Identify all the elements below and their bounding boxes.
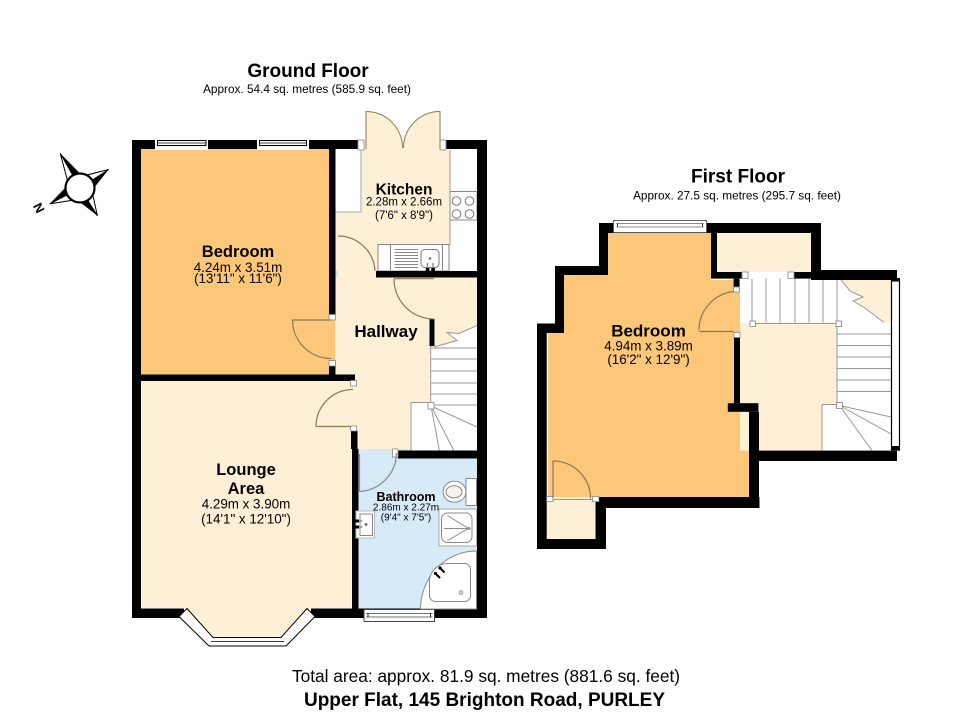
- svg-text:Hallway: Hallway: [354, 322, 418, 341]
- svg-text:Ground Floor: Ground Floor: [247, 61, 369, 82]
- svg-text:Approx. 54.4 sq. metres (585.9: Approx. 54.4 sq. metres (585.9 sq. feet): [203, 82, 411, 96]
- svg-text:(13'11" x 11'6"): (13'11" x 11'6"): [194, 271, 282, 286]
- svg-text:2.28m x 2.66m: 2.28m x 2.66m: [366, 197, 442, 209]
- svg-text:(9'4" x 7'5"): (9'4" x 7'5"): [381, 513, 431, 524]
- svg-text:(14'1" x 12'10"): (14'1" x 12'10"): [201, 512, 291, 527]
- svg-text:4.29m x 3.90m: 4.29m x 3.90m: [202, 497, 291, 512]
- svg-text:(16'2" x 12'9"): (16'2" x 12'9"): [607, 352, 689, 367]
- svg-text:(7'6" x 8'9"): (7'6" x 8'9"): [375, 210, 433, 222]
- svg-text:Bedroom: Bedroom: [611, 321, 686, 340]
- svg-text:Lounge: Lounge: [216, 461, 276, 479]
- svg-text:Area: Area: [228, 480, 266, 498]
- svg-text:Approx. 27.5 sq. metres (295.7: Approx. 27.5 sq. metres (295.7 sq. feet): [633, 189, 841, 203]
- svg-text:Bedroom: Bedroom: [202, 243, 274, 261]
- svg-text:First Floor: First Floor: [691, 167, 786, 188]
- svg-text:Upper Flat, 145 Brighton Road,: Upper Flat, 145 Brighton Road, PURLEY: [304, 690, 665, 711]
- svg-text:Total area: approx. 81.9 sq. m: Total area: approx. 81.9 sq. metres (881…: [292, 666, 680, 686]
